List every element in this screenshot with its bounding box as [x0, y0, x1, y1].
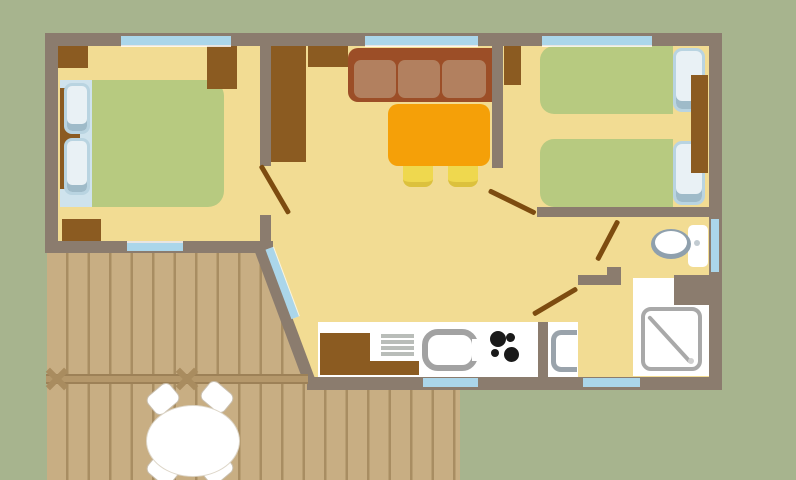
- wall-right: [709, 33, 722, 390]
- sofa-cushion-1: [354, 60, 396, 98]
- hob-burner-small-1: [506, 333, 515, 342]
- toilet-cistern: [688, 225, 708, 267]
- wall-bottom: [307, 377, 722, 390]
- bed2b-mattress: [540, 139, 673, 207]
- stool-2: [448, 166, 478, 187]
- wall-bedroom1-partition-lower: [260, 215, 271, 245]
- window-bathroom-bottom: [583, 378, 640, 387]
- bed1-mattress: [92, 80, 224, 207]
- deck-railing: [46, 374, 308, 384]
- bed2a-mattress: [540, 46, 673, 114]
- bedroom2-nightstand: [691, 75, 708, 173]
- window-bedroom1-bottom: [127, 243, 183, 251]
- living-closet: [271, 46, 306, 162]
- wall-bathroom-jamb: [607, 267, 621, 277]
- living-shelf: [308, 46, 348, 67]
- wall-left: [45, 33, 58, 253]
- bedroom1-low-cabinet: [62, 219, 101, 241]
- kitchen-sink: [422, 329, 478, 371]
- drainer-stripe-3: [381, 346, 414, 350]
- drainer-stripe-1: [381, 334, 414, 338]
- kitchen-cabinet-upper: [320, 333, 370, 375]
- window-bedroom2-top: [542, 36, 652, 45]
- hob-burner-large-2: [504, 347, 519, 362]
- window-kitchen-bottom: [423, 378, 478, 387]
- kitchen-cabinet-lower: [370, 361, 419, 375]
- wall-bathroom-block: [674, 275, 709, 305]
- deck-table: [146, 405, 240, 477]
- bedroom1-wardrobe: [207, 46, 237, 89]
- bed1-pillow-top: [64, 83, 90, 134]
- hob-burner-large-1: [490, 331, 506, 347]
- stool-1: [403, 166, 433, 187]
- wall-bedroom1-partition-upper: [260, 46, 271, 166]
- wall-bedroom2-bottom: [537, 207, 709, 217]
- washbasin: [551, 330, 577, 372]
- drainer-stripe-4: [381, 352, 414, 356]
- sofa-cushion-3: [442, 60, 486, 98]
- window-bathroom-right: [711, 219, 719, 272]
- bedroom2-closet: [504, 46, 521, 85]
- wall-kitchen-partition: [538, 322, 548, 377]
- kitchen-sink-opening: [472, 339, 480, 361]
- sofa-cushion-2: [398, 60, 440, 98]
- dining-table: [388, 104, 490, 166]
- hob-burner-small-2: [491, 349, 499, 357]
- window-living-top: [365, 36, 478, 45]
- window-bedroom1-top: [121, 36, 231, 45]
- toilet-flush-button: [694, 240, 700, 246]
- drainer-stripe-2: [381, 340, 414, 344]
- bed1-pillow-bottom: [64, 138, 90, 195]
- bedroom1-corner-cabinet: [58, 46, 88, 68]
- shower-drain: [688, 358, 694, 364]
- toilet-bowl: [655, 231, 687, 254]
- wall-bedroom2-partition: [492, 46, 503, 168]
- floor-plan-canvas: [0, 0, 796, 480]
